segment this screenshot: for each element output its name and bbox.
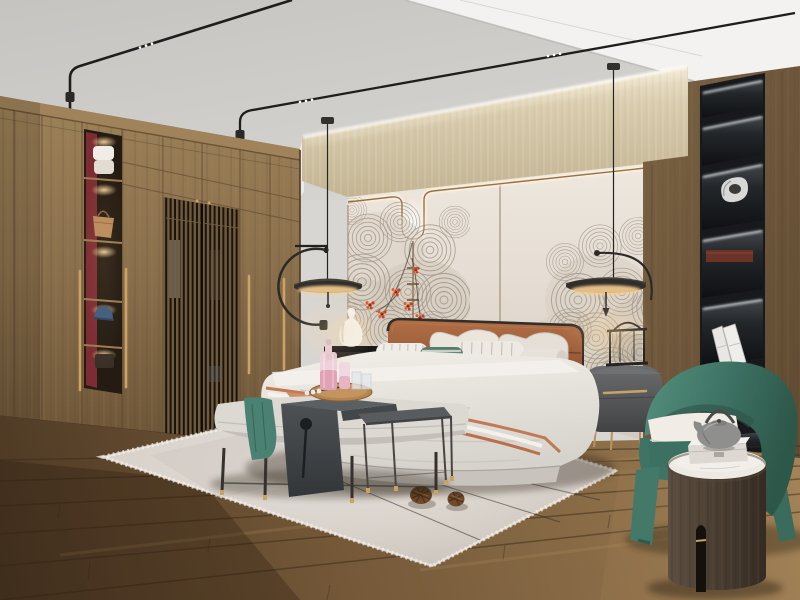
scene-canvas [0,0,800,600]
bedroom-render [0,0,800,600]
wardrobe [0,96,300,450]
red-wooden-box [706,250,753,262]
drum-table-slot [696,525,706,592]
